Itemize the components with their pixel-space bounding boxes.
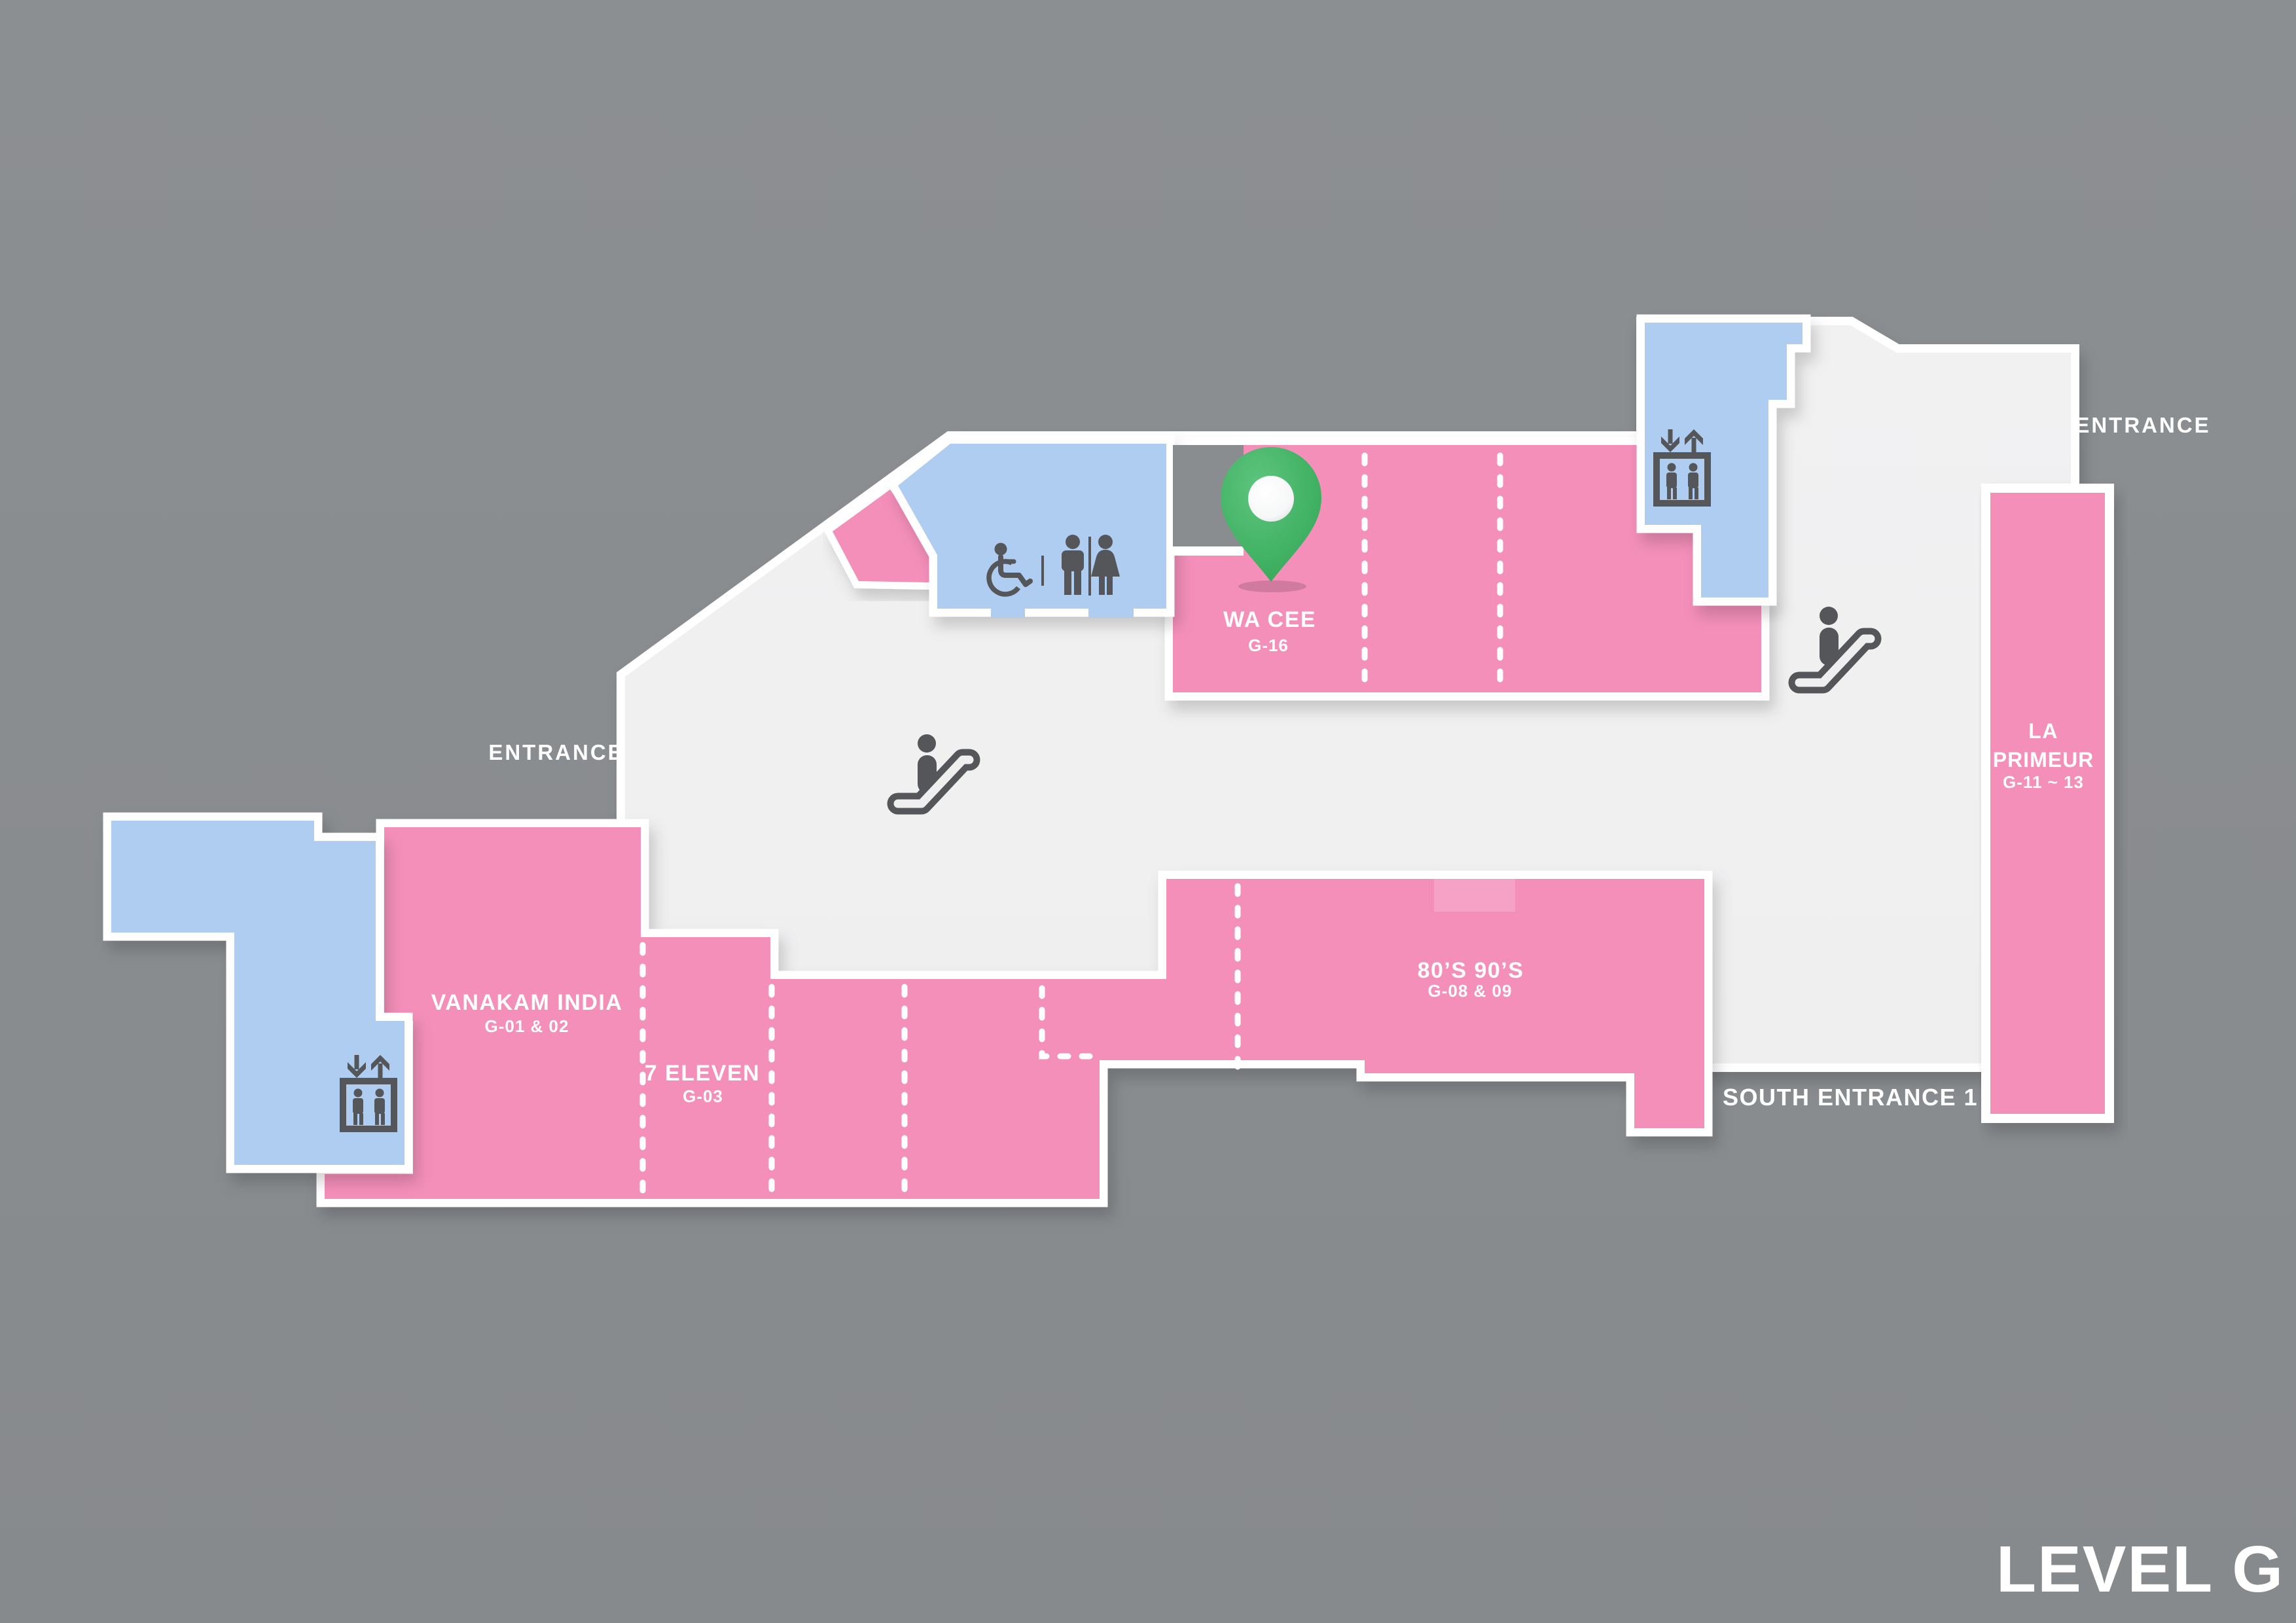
svg-text:G-08 & 09: G-08 & 09 bbox=[1428, 981, 1513, 1001]
svg-text:G-16: G-16 bbox=[1248, 635, 1289, 655]
svg-text:WA CEE: WA CEE bbox=[1223, 607, 1316, 632]
svg-text:ENTRANCE: ENTRANCE bbox=[488, 740, 624, 764]
svg-text:ENTRANCE: ENTRANCE bbox=[2075, 413, 2210, 437]
svg-text:G-01 & 02: G-01 & 02 bbox=[485, 1016, 569, 1036]
svg-text:7 ELEVEN: 7 ELEVEN bbox=[645, 1061, 760, 1086]
svg-text:G-03: G-03 bbox=[683, 1086, 723, 1106]
svg-text:LEVEL G: LEVEL G bbox=[1996, 1533, 2284, 1606]
svg-text:G-11 ~ 13: G-11 ~ 13 bbox=[2003, 772, 2084, 792]
svg-text:80’S 90’S: 80’S 90’S bbox=[1418, 958, 1524, 983]
svg-text:PRIMEUR: PRIMEUR bbox=[1993, 748, 2094, 772]
svg-text:LA: LA bbox=[2028, 719, 2058, 743]
svg-text:VANAKAM INDIA: VANAKAM INDIA bbox=[431, 990, 623, 1015]
svg-text:SOUTH ENTRANCE 1: SOUTH ENTRANCE 1 bbox=[1723, 1084, 1978, 1111]
